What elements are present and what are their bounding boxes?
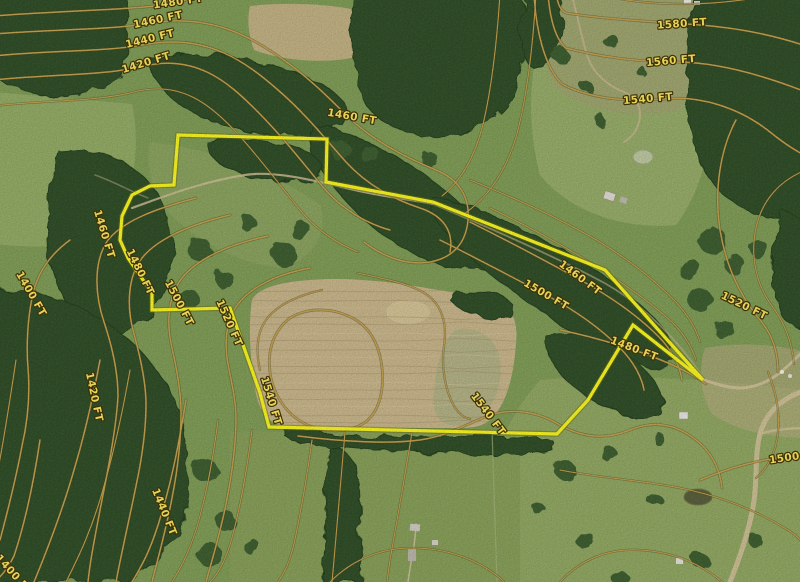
map-viewport[interactable]: 1480 FT1460 FT1440 FT1420 FT1460 FT1580 … (0, 0, 800, 582)
map-canvas[interactable]: 1480 FT1460 FT1440 FT1420 FT1460 FT1580 … (0, 0, 800, 582)
grain-overlay-light (0, 0, 800, 582)
